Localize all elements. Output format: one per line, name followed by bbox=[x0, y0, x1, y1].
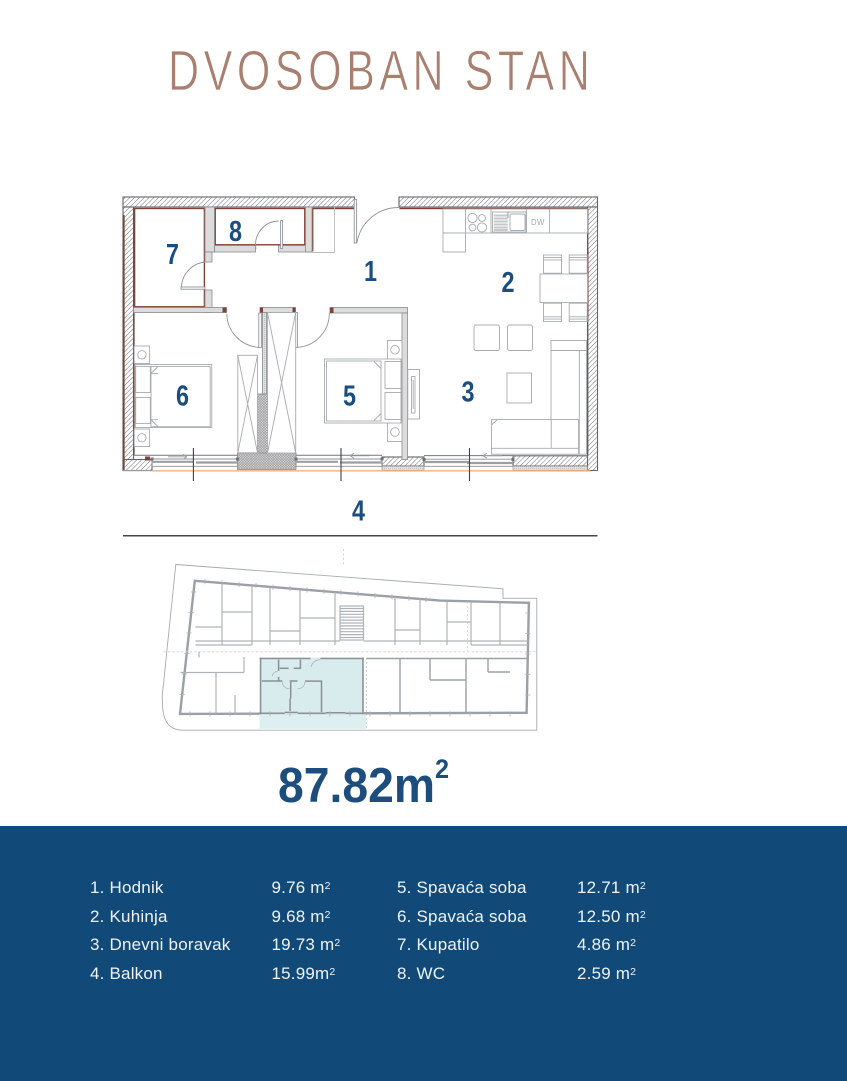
svg-text:7: 7 bbox=[166, 238, 179, 271]
svg-text:1: 1 bbox=[364, 255, 377, 288]
svg-text:5: 5 bbox=[343, 379, 356, 412]
svg-text:6: 6 bbox=[176, 379, 189, 412]
svg-text:4: 4 bbox=[352, 494, 365, 527]
svg-text:3: 3 bbox=[461, 375, 474, 408]
svg-text:2: 2 bbox=[501, 266, 514, 299]
svg-text:DW: DW bbox=[531, 218, 545, 227]
svg-text:8: 8 bbox=[229, 215, 242, 248]
